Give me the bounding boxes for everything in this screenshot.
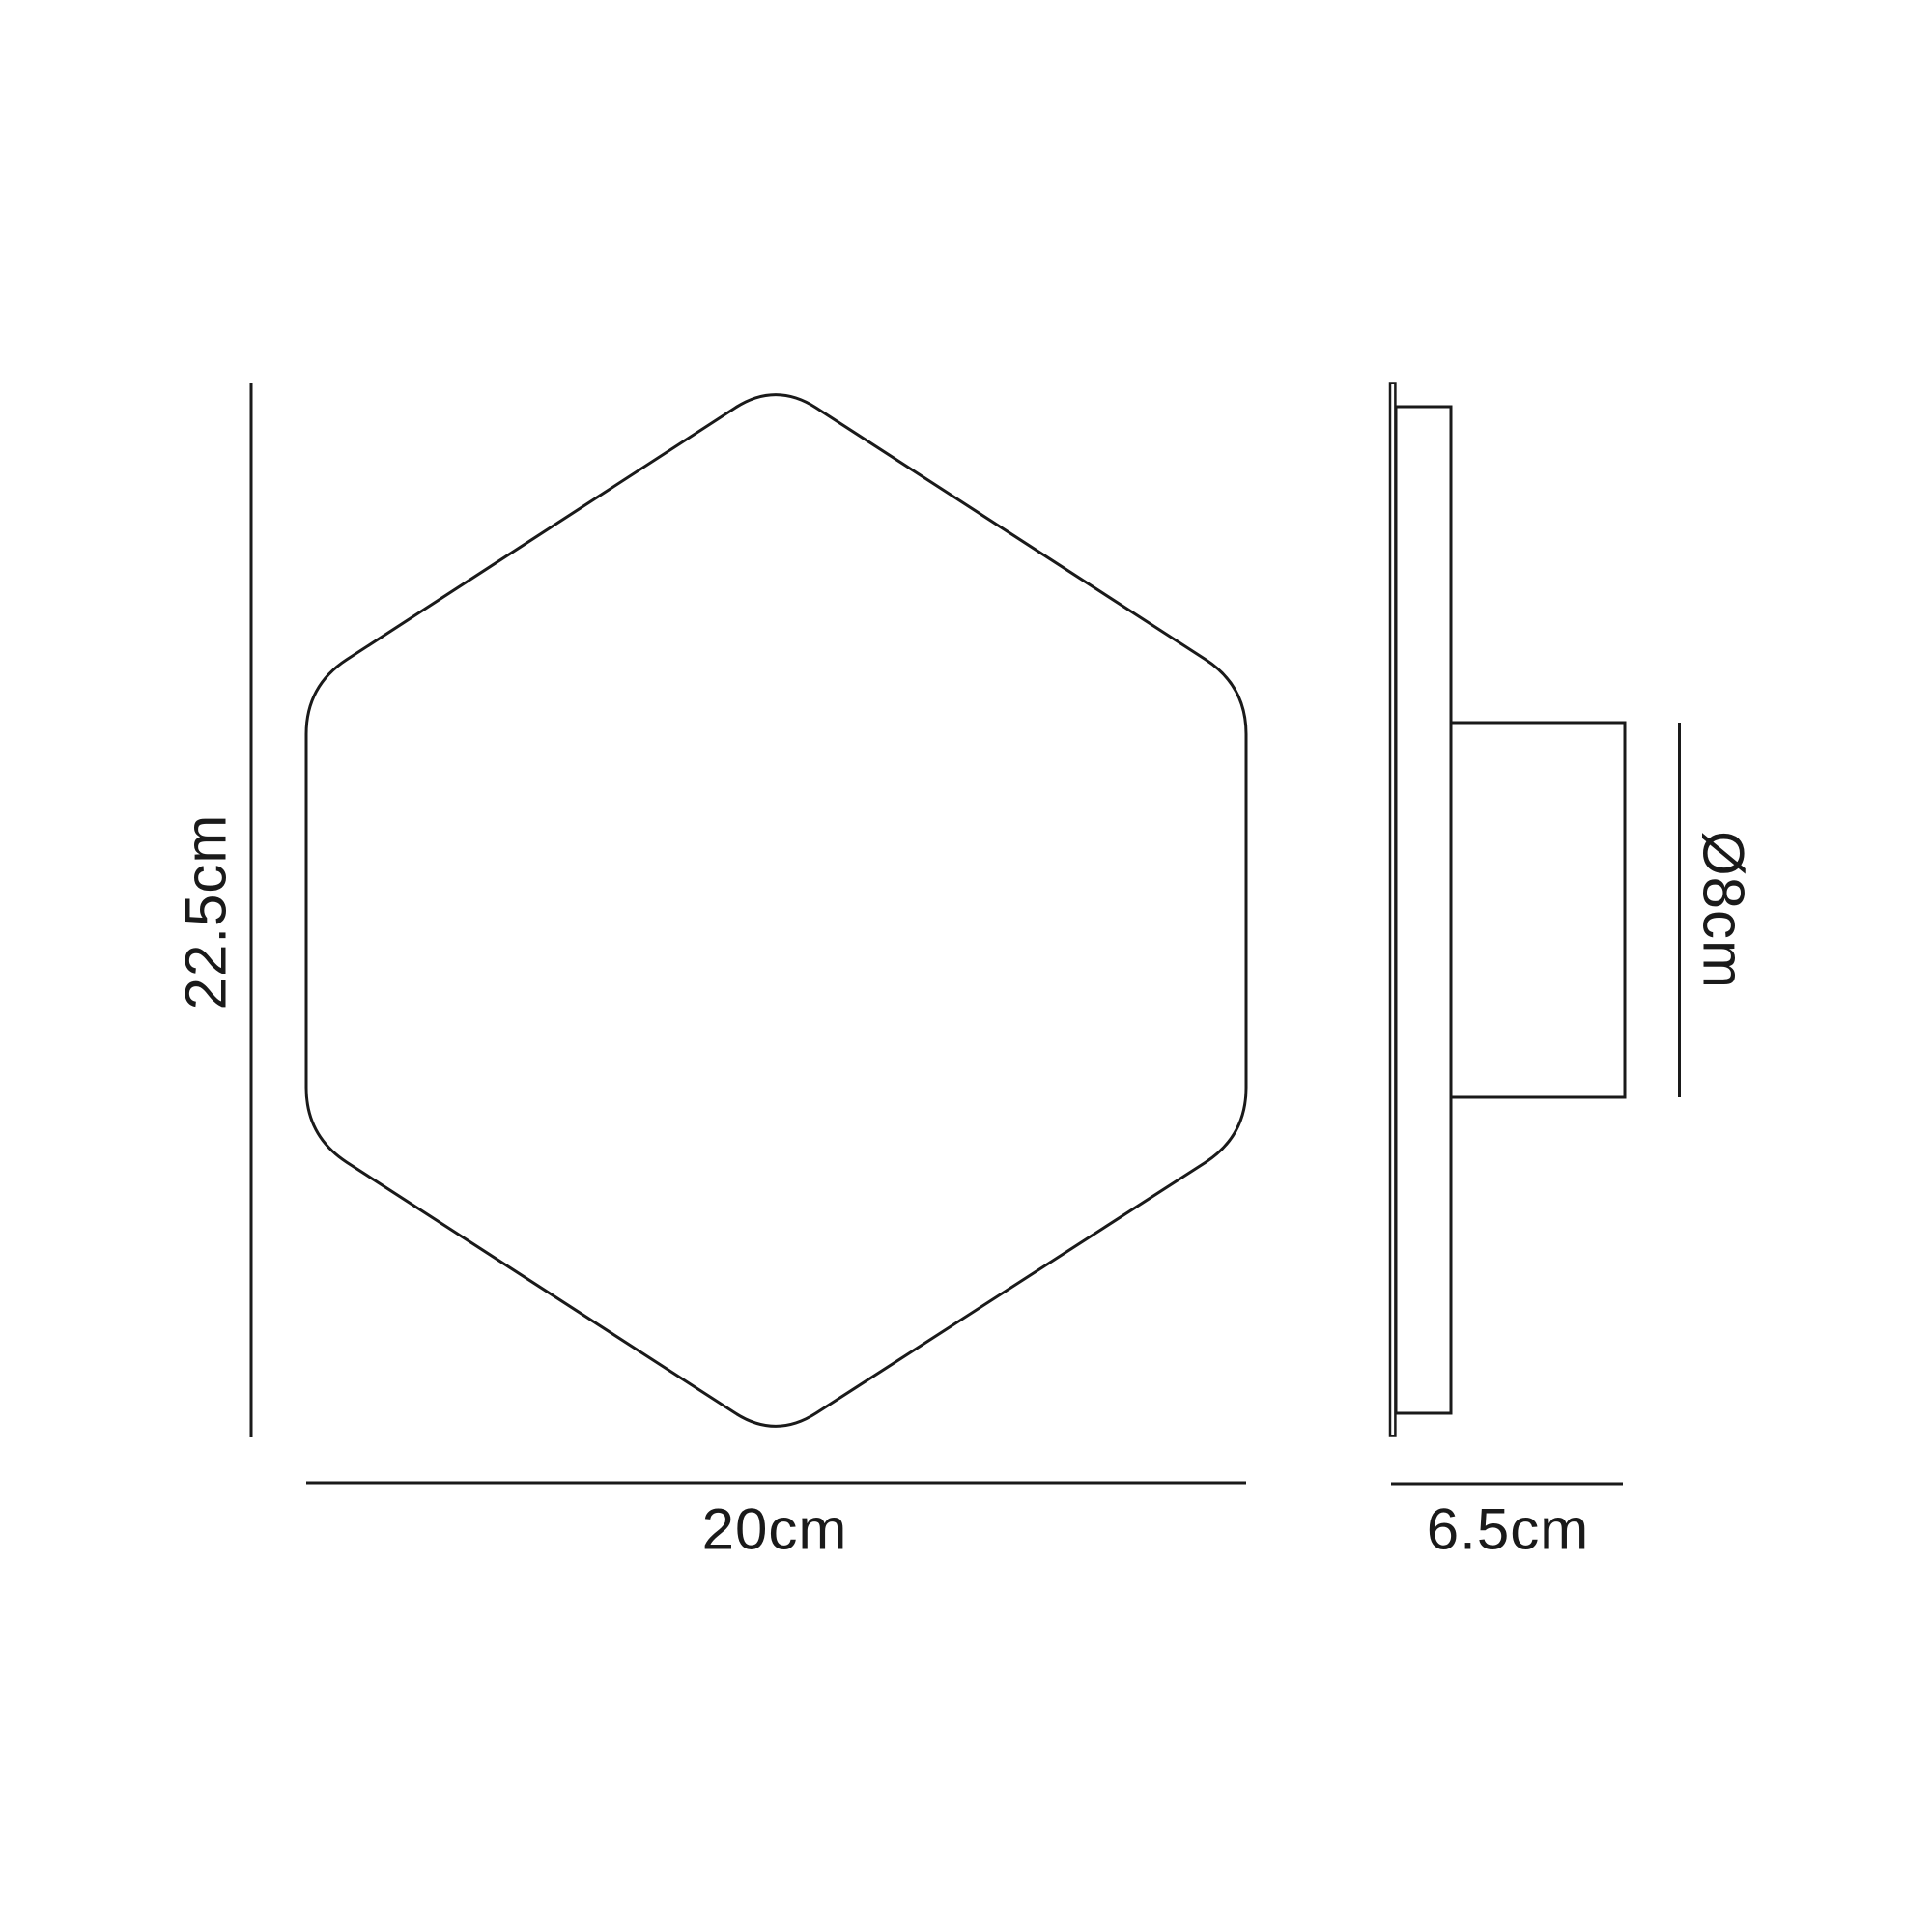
dimension-diagram-canvas: 22.5cm 20cm Ø8cm 6.5cm: [0, 0, 1932, 1932]
width-dimension-label: 20cm: [702, 1497, 848, 1562]
diagram-background: [0, 0, 1932, 1932]
height-dimension-label: 22.5cm: [174, 814, 239, 1010]
dimension-diagram: 22.5cm 20cm Ø8cm 6.5cm: [0, 0, 1932, 1932]
depth-dimension-label: 6.5cm: [1427, 1497, 1589, 1562]
diameter-dimension-label: Ø8cm: [1691, 831, 1756, 989]
